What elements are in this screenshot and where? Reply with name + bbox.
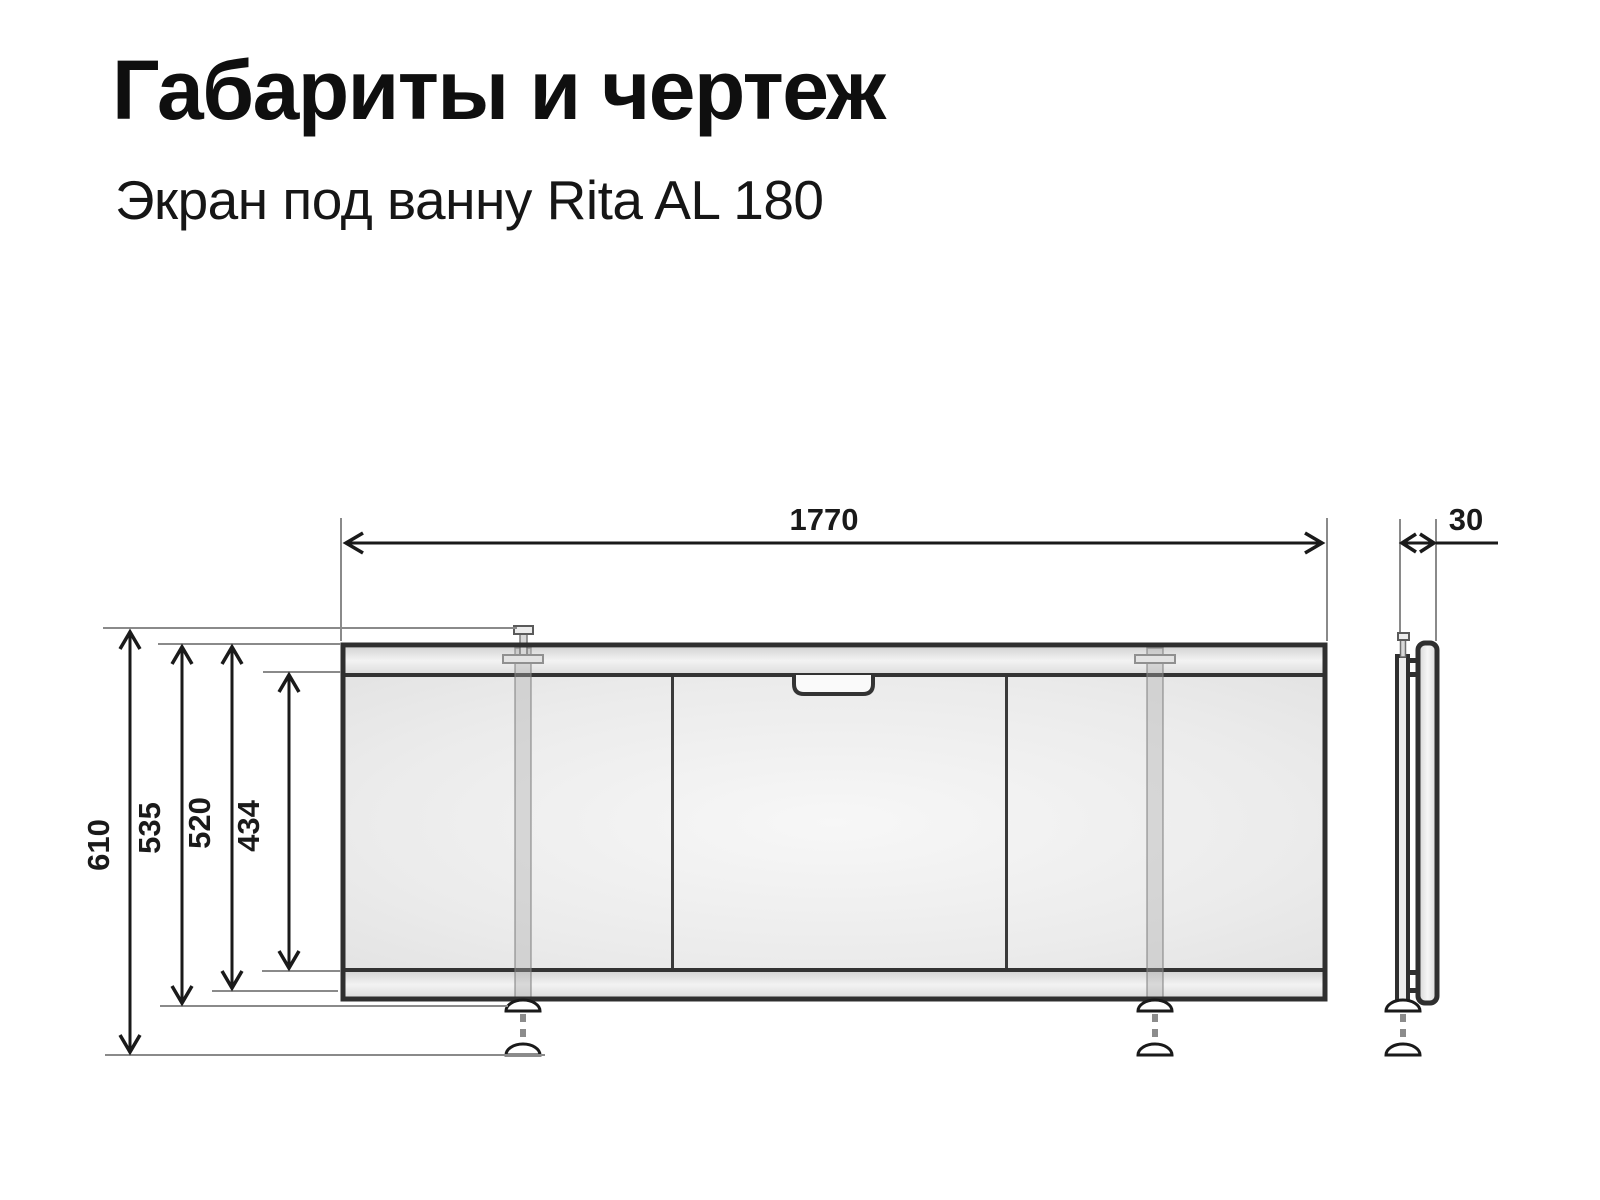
- foot-dome-upper: [506, 1000, 540, 1011]
- dim-label-520: 520: [182, 797, 217, 849]
- handle: [794, 675, 873, 694]
- dim-panel-height: 434: [231, 672, 341, 971]
- foot-dome-lower: [506, 1044, 540, 1055]
- adjustable-foot-left: [506, 1000, 540, 1055]
- side-profile: [1418, 643, 1437, 1003]
- dim-overall-width: 1770: [341, 502, 1327, 641]
- leg-bar: [515, 648, 531, 1003]
- adjustable-foot-right: [1138, 1000, 1172, 1055]
- page: Габариты и чертеж Экран под ванну Rita A…: [0, 0, 1600, 1200]
- foot-dome-upper: [1386, 1000, 1420, 1011]
- dim-label-depth: 30: [1449, 502, 1483, 537]
- leg-collar: [503, 655, 543, 663]
- technical-drawing: 1770 30 610 535: [0, 0, 1600, 1200]
- dim-label-610: 610: [81, 819, 116, 871]
- front-view: [343, 626, 1325, 1003]
- side-screw-cap: [1398, 633, 1409, 640]
- dim-profile-depth: 30: [1400, 502, 1498, 641]
- side-screw-stem: [1401, 640, 1406, 657]
- bottom-rail: [346, 972, 1323, 997]
- bottom-rail-top-edge: [346, 968, 1323, 972]
- adjustable-foot-side: [1386, 1000, 1420, 1055]
- foot-dome-lower: [1386, 1044, 1420, 1055]
- dim-label-535: 535: [132, 802, 167, 854]
- dim-label-434: 434: [231, 799, 266, 851]
- side-leg-bar: [1397, 656, 1408, 1003]
- panel-field: [346, 677, 1323, 968]
- side-view: [1397, 633, 1437, 1003]
- dim-label-width: 1770: [790, 502, 859, 537]
- leg-collar: [1135, 655, 1175, 663]
- panel-divider-left: [671, 677, 674, 968]
- foot-dome-lower: [1138, 1044, 1172, 1055]
- leg-bar: [1147, 648, 1163, 1003]
- foot-dome-upper: [1138, 1000, 1172, 1011]
- panel-divider-right: [1005, 677, 1008, 968]
